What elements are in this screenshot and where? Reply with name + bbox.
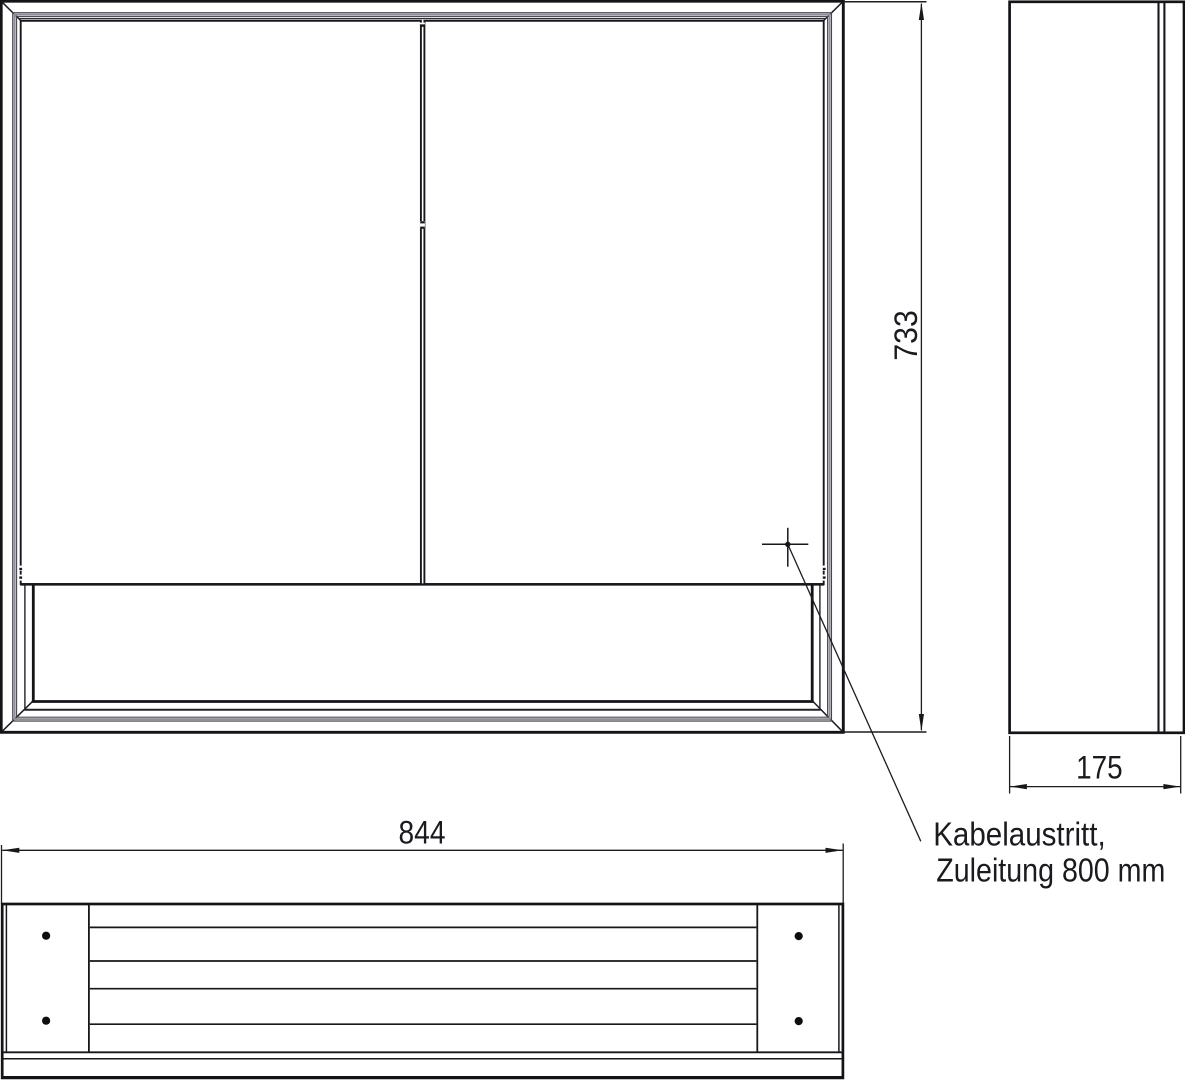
svg-text:175: 175 bbox=[1076, 750, 1123, 786]
svg-text:844: 844 bbox=[399, 815, 446, 851]
svg-text:733: 733 bbox=[888, 310, 924, 361]
svg-text:Kabelaustritt,: Kabelaustritt, bbox=[933, 816, 1105, 853]
svg-text:Zuleitung 800 mm: Zuleitung 800 mm bbox=[936, 852, 1165, 889]
